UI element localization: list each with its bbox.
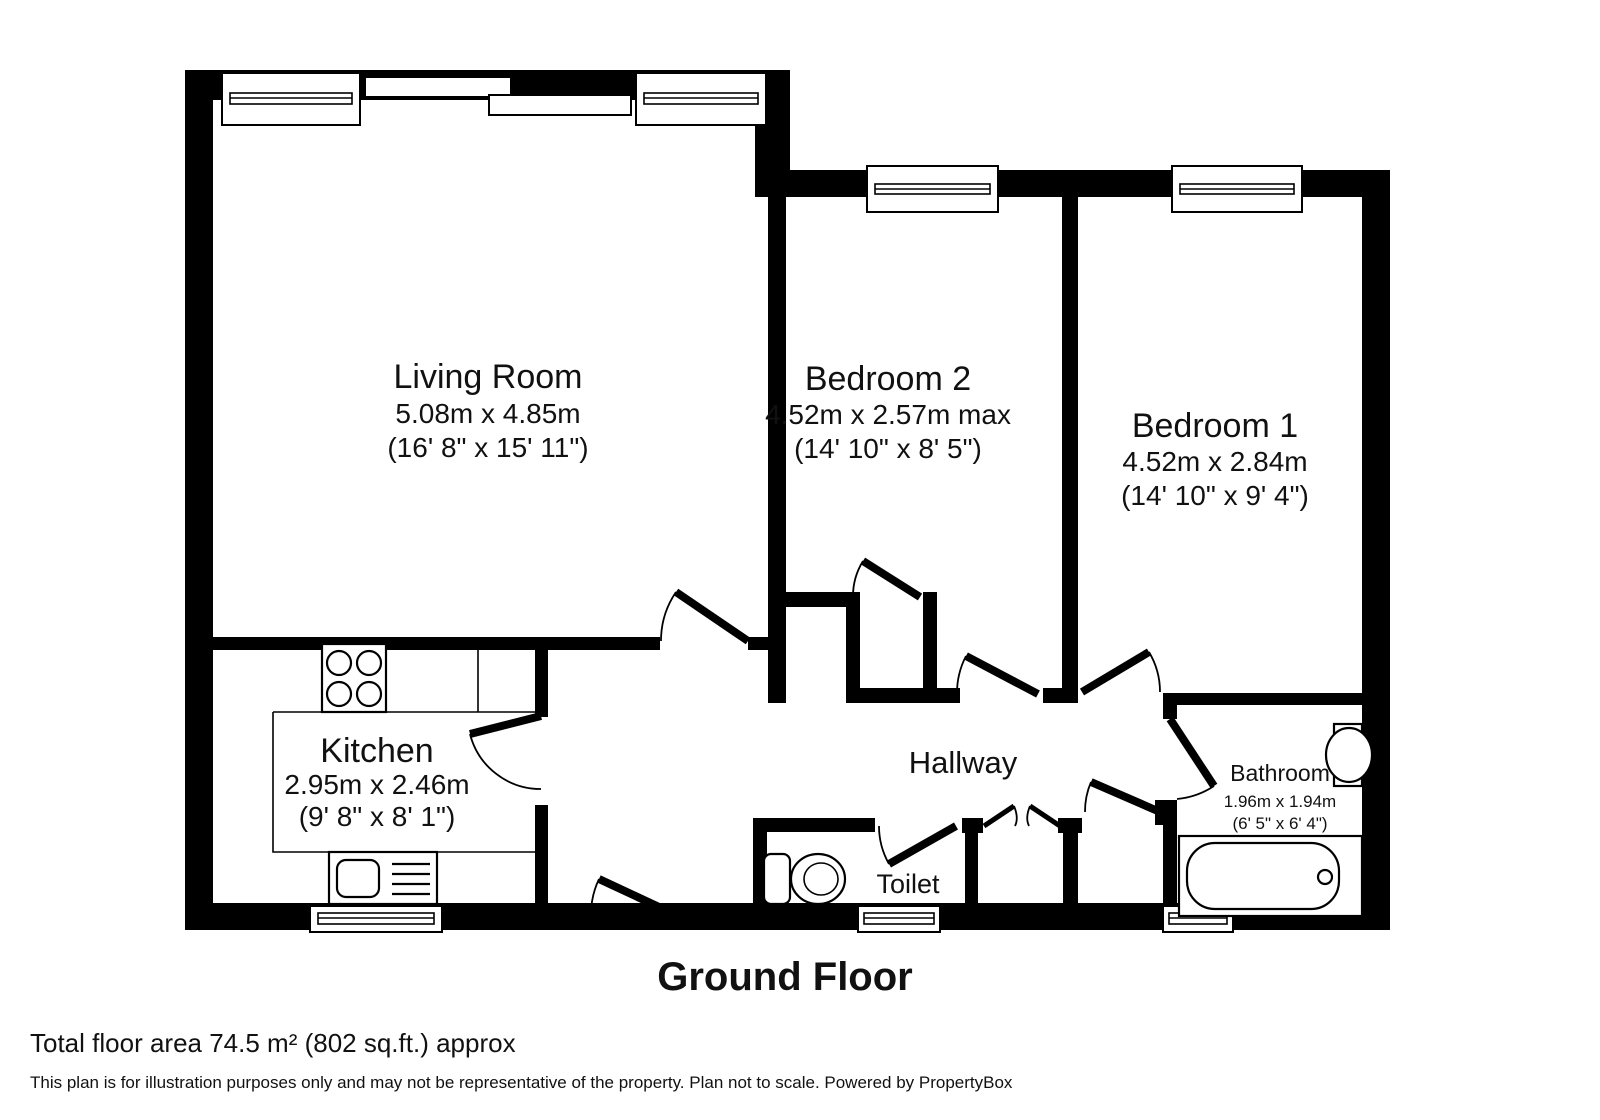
wall-segment — [1163, 693, 1362, 705]
door-living-room-icon — [661, 592, 748, 641]
wall-segment — [1362, 170, 1390, 930]
kitchen-dims-ft: (9' 8" x 8' 1") — [299, 801, 456, 832]
door-alcove-icon — [1085, 782, 1160, 812]
door-toilet-icon — [879, 826, 956, 864]
labels: Living Room 5.08m x 4.85m (16' 8" x 15' … — [30, 358, 1336, 1092]
window-icon — [310, 906, 442, 932]
wall-segment — [213, 637, 660, 650]
door-bedroom1-icon — [1082, 652, 1160, 692]
wall-segment — [1058, 818, 1082, 833]
wall-segment — [768, 197, 786, 703]
living-room-dims-m: 5.08m x 4.85m — [395, 398, 580, 429]
floorplan-page: Living Room 5.08m x 4.85m (16' 8" x 15' … — [0, 0, 1600, 1120]
wall-segment — [1062, 197, 1078, 703]
doors — [470, 561, 1214, 914]
toilet-label: Toilet — [876, 869, 940, 899]
hallway-label: Hallway — [909, 745, 1018, 780]
kitchen-sink-icon — [329, 852, 437, 904]
total-floor-area: Total floor area 74.5 m² (802 sq.ft.) ap… — [30, 1028, 516, 1058]
wall-segment — [753, 818, 875, 832]
door-bathroom-icon — [1170, 719, 1214, 799]
bathroom-label: Bathroom — [1230, 760, 1330, 786]
wall-segment — [1163, 820, 1177, 918]
bathroom-dims-ft: (6' 5" x 6' 4") — [1232, 814, 1327, 833]
page-title: Ground Floor — [657, 955, 913, 999]
wall-segment — [1063, 833, 1078, 918]
wall-segment — [965, 833, 978, 918]
wall-segment — [535, 805, 548, 918]
stove-icon — [322, 644, 386, 712]
wall-segment — [535, 637, 548, 717]
wall-segment — [185, 70, 213, 930]
wall-segment — [860, 688, 960, 703]
window-icon — [636, 73, 766, 125]
wall-segment — [786, 592, 860, 607]
window-icon — [867, 166, 998, 212]
living-room-dims-ft: (16' 8" x 15' 11") — [387, 432, 588, 463]
bedroom1-dims-ft: (14' 10" x 9' 4") — [1121, 480, 1309, 511]
wall-segment — [962, 818, 983, 833]
door-bedroom2-icon — [853, 561, 920, 597]
bedroom2-dims-m: 4.52m x 2.57m max — [765, 399, 1011, 430]
door-kitchen-icon — [470, 716, 541, 789]
wall-segment — [923, 592, 937, 703]
window-icon — [1172, 166, 1302, 212]
kitchen-label: Kitchen — [320, 732, 433, 770]
door-bifold-cupboard-icon — [984, 806, 1060, 826]
floorplan-drawing: Living Room 5.08m x 4.85m (16' 8" x 15' … — [0, 0, 1600, 1120]
wall-segment — [1163, 693, 1177, 719]
disclaimer-text: This plan is for illustration purposes o… — [30, 1073, 1013, 1092]
kitchen-dims-m: 2.95m x 2.46m — [284, 769, 469, 800]
door-inner-lobby-icon — [957, 656, 1038, 694]
bedroom1-label: Bedroom 1 — [1132, 407, 1298, 445]
living-room-label: Living Room — [394, 358, 583, 396]
bedroom2-label: Bedroom 2 — [805, 360, 971, 398]
bathroom-dims-m: 1.96m x 1.94m — [1224, 792, 1336, 811]
window-icon — [858, 906, 940, 932]
bedroom1-dims-m: 4.52m x 2.84m — [1122, 446, 1307, 477]
wall-segment — [748, 637, 773, 650]
bedroom2-dims-ft: (14' 10" x 8' 5") — [794, 433, 982, 464]
toilet-icon — [764, 854, 845, 904]
wall-segment — [846, 607, 860, 703]
window-icon — [222, 73, 360, 125]
bathtub-icon — [1179, 836, 1362, 916]
